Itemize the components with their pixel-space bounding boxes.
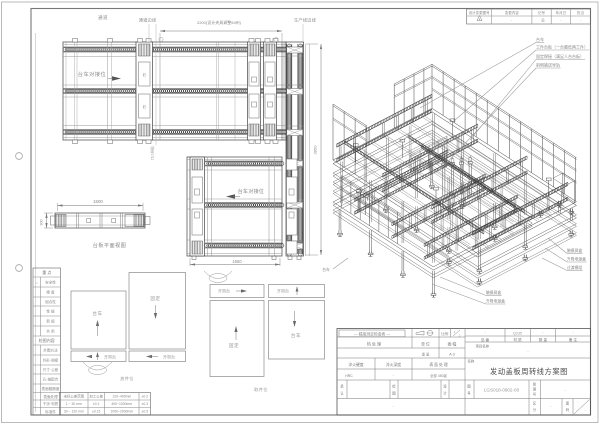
svg-text:·: · [393,373,395,378]
svg-text:120~400mm: 120~400mm [112,395,131,399]
svg-text:热 处 理: 热 处 理 [367,341,381,347]
svg-text:·: · [550,404,552,409]
svg-text:过渡模组: 过渡模组 [567,265,582,270]
svg-text:检图内容: 检图内容 [39,337,55,343]
svg-text:HRC: HRC [345,374,353,378]
svg-text:台车对接位: 台车对接位 [78,70,106,78]
svg-text:升降电源盒: 升降电源盒 [567,257,586,262]
svg-text:号: 号 [533,392,536,397]
svg-text:旧: 旧 [143,72,146,77]
svg-text:变更内容: 变更内容 [505,10,519,15]
svg-text:±0.3: ±0.3 [142,402,149,406]
svg-text:重 量: 重 量 [422,352,430,357]
svg-text:设计变更图号: 设计变更图号 [469,10,490,15]
svg-text:新 规: 新 规 [46,319,55,324]
svg-text:·: · [577,401,578,405]
svg-text:±0.5: ±0.5 [142,410,149,414]
svg-text:项目名称: 项目名称 [476,344,490,349]
svg-text:1500: 1500 [93,199,103,204]
svg-text:·: · [564,388,566,393]
svg-text:固定: 固定 [229,342,239,349]
svg-text:孔·轴配合: 孔·轴配合 [43,377,59,382]
svg-text:触摸屏盒: 触摸屏盒 [567,248,582,253]
svg-text:品 番: 品 番 [481,337,490,342]
svg-text:材 质: 材 质 [513,337,522,342]
svg-text:开带台: 开带台 [104,354,116,360]
svg-text:全部 480级: 全部 480级 [430,373,447,378]
svg-text:备 注: 备 注 [569,337,578,342]
svg-text:组合性: 组合性 [45,299,56,304]
svg-text:淬火深度: 淬火深度 [386,362,401,367]
svg-text:标准件: 标准件 [45,409,56,414]
svg-text:通道边线: 通道边线 [139,17,157,24]
svg-text:±0.2: ±0.2 [142,395,149,399]
svg-text:固定焊接（满足人台台板）: 固定焊接（满足人台台板） [536,53,584,59]
svg-text:·: · [511,18,513,23]
svg-text:1 ~ 30 mm: 1 ~ 30 mm [66,402,82,406]
svg-text:·: · [560,18,562,23]
svg-text:400~1000mm: 400~1000mm [111,402,132,406]
svg-text:Q235: Q235 [513,331,522,335]
svg-text:台车: 台车 [291,332,301,339]
svg-text:·: · [585,409,586,413]
svg-text:单 位: 单 位 [421,342,430,347]
svg-text:干涉·材质: 干涉·材质 [43,401,59,406]
svg-text:30 ~ 120 mm: 30 ~ 120 mm [64,410,84,414]
svg-text:开带台: 开带台 [218,288,230,294]
svg-text:加工公差: 加工公差 [89,394,103,399]
svg-text:台车: 台车 [92,310,102,317]
svg-text:·: · [542,330,544,335]
svg-text:年月日: 年月日 [556,10,567,15]
svg-text:数 量: 数 量 [539,337,548,342]
svg-text:淬火硬度: 淬火硬度 [348,362,363,367]
svg-text:尺寸·公差: 尺寸·公差 [43,367,59,372]
svg-text:±0.1: ±0.1 [93,402,100,406]
svg-text:旧: 旧 [143,104,146,109]
svg-text:15(1挡板): 15(1挡板) [150,146,155,161]
svg-text:生产线边线: 生产线边线 [294,17,317,24]
svg-text:比例: 比例 [441,331,449,336]
svg-text:斜侧输送导轨: 斜侧输送导轨 [536,62,560,68]
svg-text:台车对接位: 台车对接位 [238,188,265,195]
svg-text:记号: 记号 [538,10,546,15]
svg-text:台板平面视图: 台板平面视图 [93,241,127,249]
svg-text:台车: 台车 [536,36,544,42]
svg-text:·: · [580,18,582,23]
svg-text:发动盖板周转线方案图: 发动盖板周转线方案图 [490,367,568,376]
svg-text:·: · [484,330,486,335]
svg-text:台车: 台车 [322,267,330,272]
svg-text:重 点: 重 点 [42,269,51,275]
svg-text:性 能: 性 能 [46,309,55,314]
svg-text:外形·相接: 外形·相接 [43,358,59,363]
svg-text:图: 图 [566,402,569,406]
svg-text:3850: 3850 [313,145,318,155]
svg-text:触摸屏盒: 触摸屏盒 [486,290,501,295]
svg-text:未标公差范围: 未标公差范围 [64,394,85,399]
svg-text:表面粗糙度: 表面粗糙度 [42,386,60,391]
svg-text:·: · [392,404,394,409]
svg-text:安全性: 安全性 [45,280,56,285]
svg-text:工件台板（一台最低两工件）: 工件台板（一台最低两工件） [536,44,588,50]
svg-text:— 精度测定检查表 —: — 精度测定检查表 — [354,331,390,336]
svg-text:固定: 固定 [150,295,160,302]
svg-text:担当: 担当 [577,10,585,15]
svg-text:名称: 名称 [468,359,475,364]
svg-text:升降电源盒: 升降电源盒 [486,299,505,304]
svg-text:·: · [527,349,529,354]
svg-text:·: · [572,330,574,335]
svg-text:开带台: 开带台 [163,354,175,360]
svg-text:LGS018-0902-00: LGS018-0902-00 [484,388,520,393]
svg-text:通道: 通道 [98,14,108,21]
svg-text:图 幅: 图 幅 [448,342,457,347]
svg-text:○: ○ [36,281,38,285]
svg-text:取件位: 取件位 [254,386,267,393]
svg-text:放件位: 放件位 [120,375,133,382]
svg-text:1650: 1650 [232,259,242,264]
svg-text:1000~2000mm: 1000~2000mm [110,410,133,414]
svg-text:表面处理: 表面处理 [43,394,58,399]
svg-text:A 3: A 3 [449,353,455,357]
svg-text:300: 300 [40,219,44,225]
svg-text:外围方法: 外围方法 [43,348,58,353]
svg-text:共 用: 共 用 [46,329,55,334]
svg-text:开带台: 开带台 [277,288,289,294]
svg-text:±0.15: ±0.15 [92,410,101,414]
svg-text:管: 管 [533,382,536,387]
svg-text:表 面 处 理: 表 面 处 理 [429,362,448,367]
svg-text:码: 码 [566,407,569,412]
svg-text:2200(设计夹具调整54州): 2200(设计夹具调整54州) [197,19,242,25]
svg-text:精 度: 精 度 [46,290,55,295]
